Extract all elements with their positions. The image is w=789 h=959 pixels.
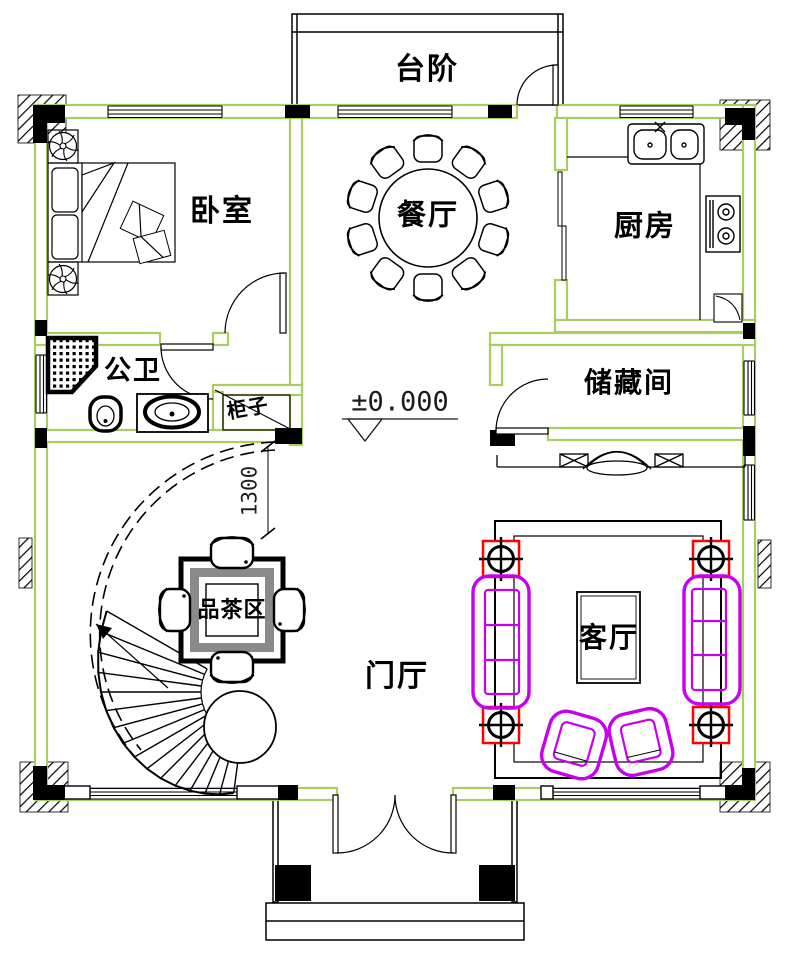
sink-vanity xyxy=(137,394,208,432)
corner-cabinet xyxy=(714,294,742,322)
room-label-kitchen: 厨房 xyxy=(614,213,676,242)
room-label-steps: 台阶 xyxy=(395,55,459,85)
pillow xyxy=(52,215,78,259)
room-label-living: 客厅 xyxy=(579,624,639,652)
floor-plan: 台阶 卧室 餐厅 厨房 公卫 柜子 储藏间 品茶区 门厅 客厅 ±0.000 1… xyxy=(0,0,789,959)
dimension-1300 xyxy=(261,441,275,539)
dining-chair xyxy=(477,221,512,258)
dining-chair xyxy=(449,142,489,181)
tea-chair xyxy=(159,588,190,632)
armchair xyxy=(606,705,676,778)
dining-chair xyxy=(344,221,379,258)
dining-chair xyxy=(367,254,407,293)
sofa-right xyxy=(684,576,740,704)
fan-decor-icon xyxy=(48,264,78,294)
armchair xyxy=(538,707,611,783)
dining-chair xyxy=(413,274,443,301)
floor-plan-drawing xyxy=(0,0,789,959)
room-label-bedroom: 卧室 xyxy=(190,197,254,227)
tv-console xyxy=(497,452,745,476)
room-label-storage: 储藏间 xyxy=(584,369,674,397)
stair-dimension-label: 1300 xyxy=(240,466,261,517)
double-sink xyxy=(628,122,704,164)
elevation-marker xyxy=(342,419,458,441)
sofa-left xyxy=(473,576,529,708)
shower xyxy=(48,338,96,392)
tea-chair xyxy=(210,537,254,568)
room-label-bathroom: 公卫 xyxy=(104,358,162,385)
tea-chair xyxy=(210,652,254,683)
tv-icon xyxy=(583,452,651,476)
room-label-foyer: 门厅 xyxy=(365,662,429,692)
pillow xyxy=(52,168,78,212)
tea-chair xyxy=(274,588,305,632)
room-label-tea-area: 品茶区 xyxy=(197,599,266,621)
dining-chair xyxy=(449,254,489,293)
dining-chair xyxy=(367,142,407,181)
toilet xyxy=(90,397,121,431)
dining-chair xyxy=(344,178,379,215)
elevation-label: ±0.000 xyxy=(351,389,449,416)
dining-chair xyxy=(477,178,512,215)
room-label-dining: 餐厅 xyxy=(397,202,459,231)
bedroom-furniture xyxy=(48,130,175,295)
stove xyxy=(706,196,740,252)
dining-chair xyxy=(413,135,443,162)
